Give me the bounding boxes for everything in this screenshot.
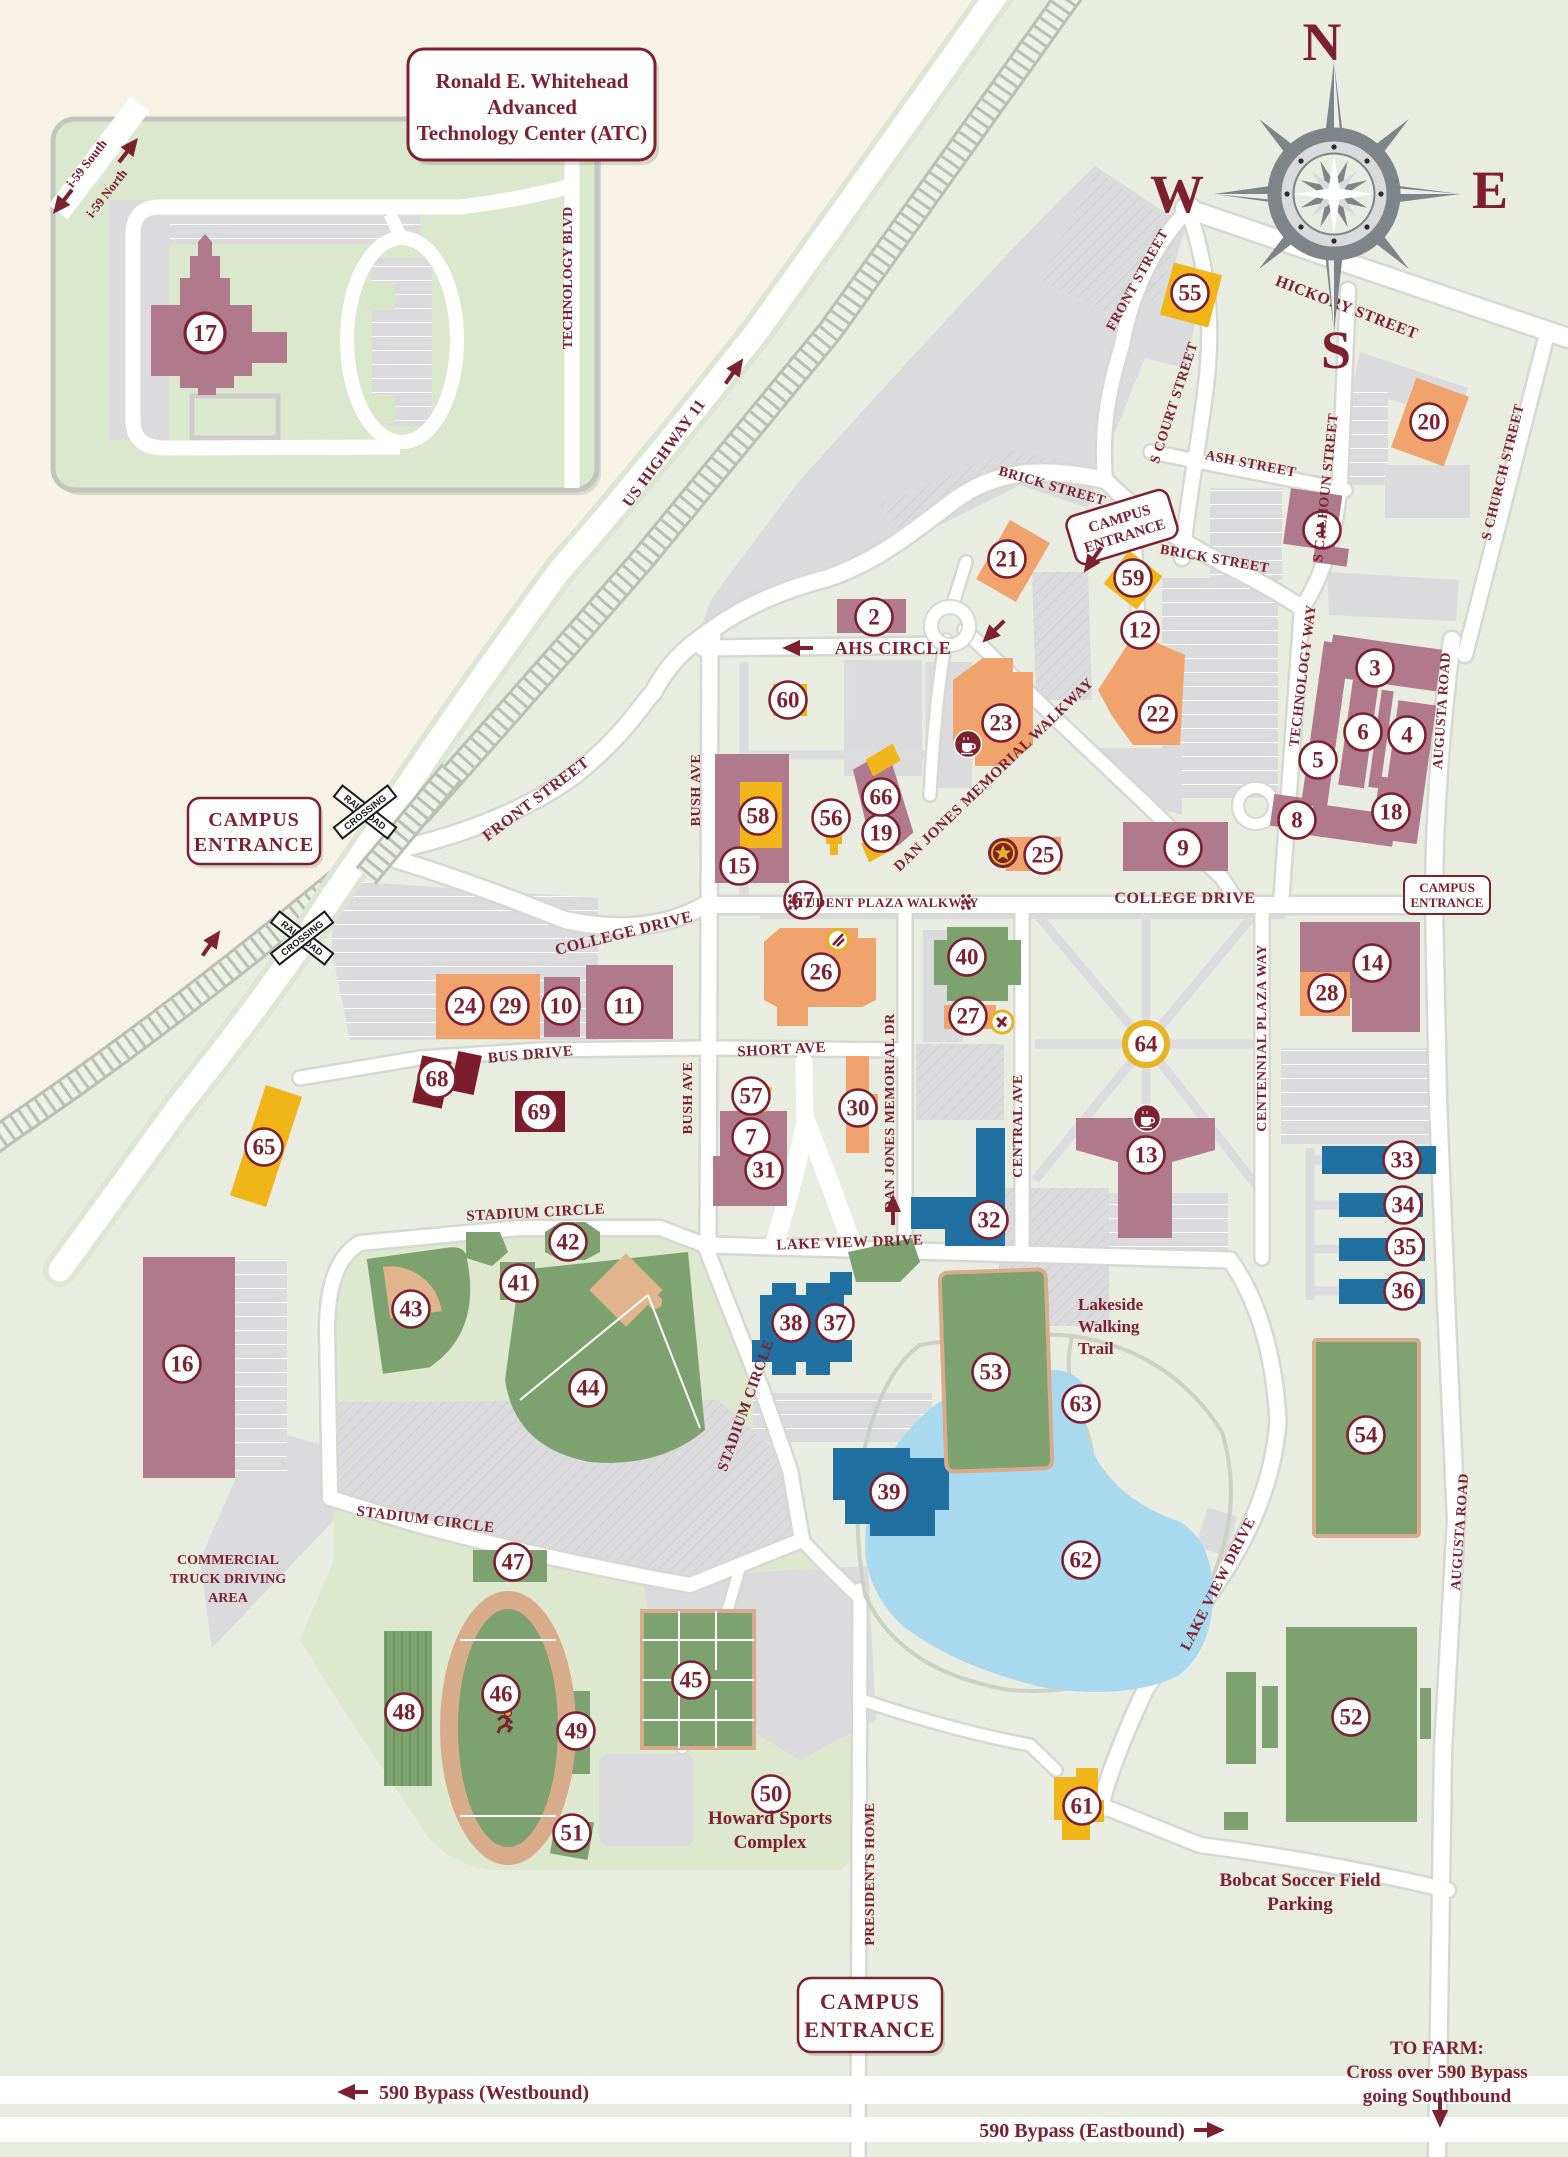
- svg-text:Walking: Walking: [1078, 1317, 1140, 1336]
- svg-text:CAMPUS: CAMPUS: [1419, 880, 1475, 895]
- svg-text:56: 56: [820, 806, 843, 831]
- svg-text:W: W: [1150, 164, 1204, 224]
- svg-text:41: 41: [508, 1271, 531, 1296]
- svg-text:8: 8: [1291, 808, 1303, 833]
- svg-text:66: 66: [870, 785, 893, 810]
- svg-text:69: 69: [528, 1100, 551, 1125]
- svg-text:28: 28: [1316, 981, 1339, 1006]
- svg-text:39: 39: [878, 1480, 901, 1505]
- svg-text:23: 23: [990, 711, 1013, 736]
- svg-text:52: 52: [1340, 1705, 1363, 1730]
- svg-text:7: 7: [745, 1125, 757, 1150]
- svg-text:Advanced: Advanced: [487, 95, 577, 119]
- svg-text:Complex: Complex: [734, 1832, 807, 1853]
- svg-text:ENTRANCE: ENTRANCE: [194, 834, 314, 856]
- svg-text:Trail: Trail: [1078, 1339, 1114, 1358]
- svg-text:E: E: [1472, 160, 1508, 220]
- svg-text:12: 12: [1129, 618, 1152, 643]
- svg-text:21: 21: [996, 547, 1019, 572]
- svg-text:38: 38: [780, 1311, 803, 1336]
- svg-text:590 Bypass (Eastbound): 590 Bypass (Eastbound): [979, 2120, 1185, 2142]
- svg-text:61: 61: [1071, 1794, 1094, 1819]
- svg-text:29: 29: [499, 994, 522, 1019]
- svg-text:55: 55: [1179, 281, 1202, 306]
- svg-text:going Southbound: going Southbound: [1363, 2086, 1512, 2107]
- svg-text:AHS CIRCLE: AHS CIRCLE: [835, 638, 952, 658]
- svg-text:Parking: Parking: [1267, 1894, 1333, 1915]
- svg-text:25: 25: [1032, 843, 1055, 868]
- svg-text:44: 44: [577, 1376, 601, 1401]
- svg-text:Howard Sports: Howard Sports: [708, 1808, 832, 1829]
- svg-text:65: 65: [253, 1135, 276, 1160]
- svg-text:Ronald E. Whitehead: Ronald E. Whitehead: [436, 69, 629, 93]
- svg-text:19: 19: [870, 821, 893, 846]
- svg-text:COLLEGE DRIVE: COLLEGE DRIVE: [1114, 890, 1255, 907]
- svg-text:43: 43: [400, 1297, 423, 1322]
- svg-text:30: 30: [847, 1096, 870, 1121]
- svg-text:TRUCK DRIVING: TRUCK DRIVING: [170, 1572, 286, 1587]
- svg-text:33: 33: [1391, 1148, 1414, 1173]
- svg-text:31: 31: [753, 1158, 776, 1183]
- svg-text:Bobcat Soccer Field: Bobcat Soccer Field: [1219, 1870, 1381, 1891]
- svg-text:5: 5: [1312, 748, 1324, 773]
- svg-text:Technology Center (ATC): Technology Center (ATC): [417, 121, 648, 145]
- svg-text:CAMPUS: CAMPUS: [208, 809, 300, 831]
- svg-text:18: 18: [1380, 800, 1403, 825]
- svg-text:58: 58: [747, 804, 770, 829]
- svg-text:47: 47: [502, 1550, 525, 1575]
- svg-text:48: 48: [393, 1700, 416, 1725]
- svg-text:37: 37: [824, 1311, 847, 1336]
- svg-text:6: 6: [1357, 720, 1369, 745]
- svg-text:3: 3: [1369, 656, 1381, 681]
- svg-text:4: 4: [1401, 723, 1413, 748]
- svg-text:63: 63: [1070, 1392, 1093, 1417]
- svg-text:TO FARM:: TO FARM:: [1390, 2038, 1484, 2059]
- svg-text:DAN JONES MEMORIAL DR: DAN JONES MEMORIAL DR: [883, 1013, 898, 1211]
- svg-text:35: 35: [1394, 1235, 1417, 1260]
- svg-text:COMMERCIAL: COMMERCIAL: [177, 1553, 279, 1568]
- svg-text:26: 26: [810, 960, 833, 985]
- svg-text:40: 40: [956, 945, 979, 970]
- svg-text:10: 10: [550, 994, 573, 1019]
- svg-text:50: 50: [760, 1782, 783, 1807]
- svg-text:24: 24: [454, 994, 478, 1019]
- svg-text:BUSH AVE: BUSH AVE: [681, 1062, 696, 1135]
- svg-text:ENTRANCE: ENTRANCE: [804, 2017, 935, 2042]
- svg-text:AREA: AREA: [208, 1591, 249, 1606]
- svg-text:36: 36: [1392, 1279, 1415, 1304]
- svg-text:STUDENT PLAZA WALKWAY: STUDENT PLAZA WALKWAY: [789, 895, 979, 910]
- svg-text:14: 14: [1361, 951, 1385, 976]
- svg-text:CENTENNIAL PLAZA WAY: CENTENNIAL PLAZA WAY: [1255, 944, 1270, 1131]
- svg-text:TECHNOLOGY BLVD: TECHNOLOGY BLVD: [561, 207, 576, 350]
- svg-text:51: 51: [561, 1821, 584, 1846]
- svg-text:53: 53: [980, 1360, 1003, 1385]
- svg-text:13: 13: [1135, 1143, 1158, 1168]
- svg-text:16: 16: [171, 1352, 194, 1377]
- svg-text:59: 59: [1122, 566, 1145, 591]
- svg-text:22: 22: [1147, 702, 1170, 727]
- svg-text:46: 46: [490, 1682, 513, 1707]
- svg-text:17: 17: [193, 321, 217, 347]
- svg-text:62: 62: [1070, 1548, 1093, 1573]
- svg-text:27: 27: [957, 1004, 980, 1029]
- svg-text:9: 9: [1177, 836, 1189, 861]
- svg-text:57: 57: [740, 1084, 763, 1109]
- svg-text:68: 68: [426, 1067, 449, 1092]
- svg-text:590 Bypass (Westbound): 590 Bypass (Westbound): [379, 2082, 589, 2104]
- svg-text:PRESIDENTS HOME: PRESIDENTS HOME: [863, 1802, 878, 1945]
- svg-text:11: 11: [613, 994, 635, 1019]
- svg-text:60: 60: [777, 688, 800, 713]
- svg-text:Lakeside: Lakeside: [1078, 1295, 1144, 1314]
- svg-text:N: N: [1303, 12, 1342, 72]
- svg-text:49: 49: [565, 1719, 588, 1744]
- svg-text:42: 42: [557, 1230, 580, 1255]
- svg-text:34: 34: [1392, 1193, 1416, 1218]
- svg-text:20: 20: [1418, 410, 1441, 435]
- svg-text:Cross over 590 Bypass: Cross over 590 Bypass: [1346, 2062, 1527, 2083]
- svg-text:ENTRANCE: ENTRANCE: [1411, 895, 1484, 910]
- svg-text:64: 64: [1135, 1032, 1159, 1057]
- svg-text:S: S: [1321, 320, 1351, 380]
- svg-text:15: 15: [728, 854, 751, 879]
- svg-text:CENTRAL AVE: CENTRAL AVE: [1011, 1074, 1026, 1178]
- svg-text:45: 45: [680, 1668, 703, 1693]
- svg-text:BUSH AVE: BUSH AVE: [689, 754, 704, 827]
- svg-text:32: 32: [978, 1208, 1001, 1233]
- svg-text:54: 54: [1355, 1423, 1379, 1448]
- svg-text:2: 2: [868, 605, 880, 630]
- svg-text:CAMPUS: CAMPUS: [820, 1989, 920, 2014]
